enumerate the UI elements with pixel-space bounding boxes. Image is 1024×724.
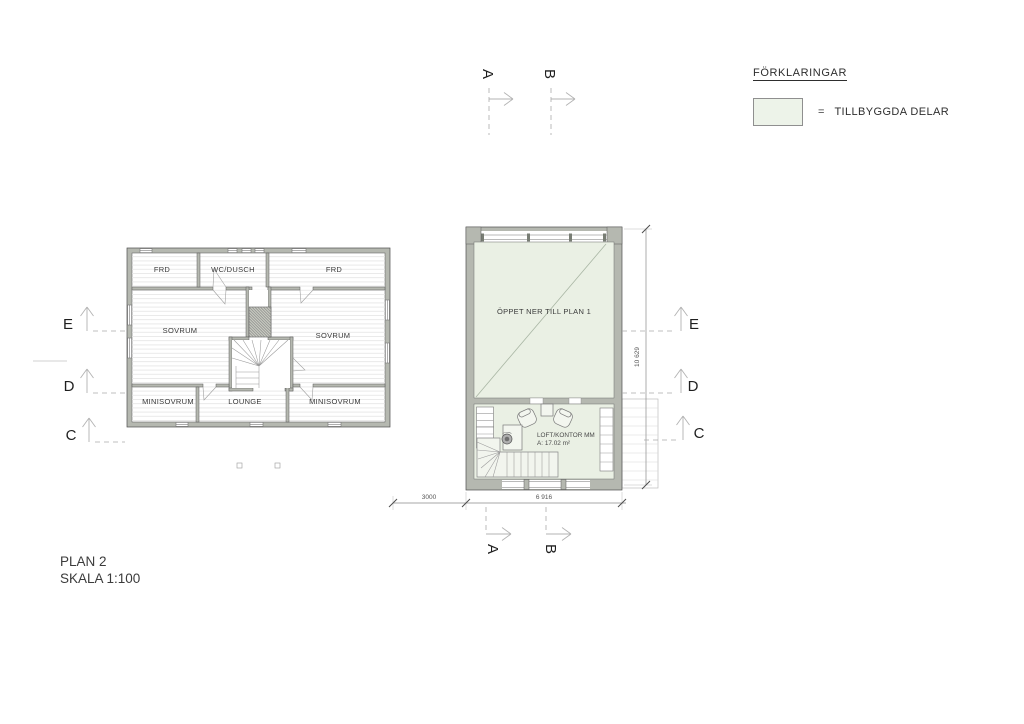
- title-block: PLAN 2 SKALA 1:100: [60, 553, 140, 587]
- room-label-wc-dusch: WC/DUSCH: [211, 265, 255, 274]
- window-post: [561, 480, 566, 490]
- corner-post-ne: [607, 227, 622, 244]
- room-label-frd-left: FRD: [154, 265, 171, 274]
- section-marker-d-right: D: [622, 369, 699, 395]
- section-marker-a-top: A: [479, 69, 513, 135]
- window-post: [524, 480, 529, 490]
- section-marker-b-top: B: [541, 69, 575, 135]
- dim-10629: 10 629: [634, 347, 641, 367]
- svg-text:D: D: [688, 378, 699, 395]
- plan-title: PLAN 2: [60, 553, 140, 570]
- post-marker: [275, 463, 280, 468]
- dimension-bottom: 3000 6 916: [389, 492, 626, 510]
- room-label-minisovrum-left: MINISOVRUM: [142, 397, 194, 406]
- corner-post-nw: [466, 227, 481, 244]
- section-marker-d-left: D: [64, 369, 125, 395]
- divider-opening: [530, 398, 543, 404]
- loft-area-label: A: 17.02 m²: [537, 440, 570, 447]
- section-marker-e-right: E: [622, 307, 699, 333]
- legend-row: = TILLBYGGDA DELAR: [753, 98, 949, 126]
- dim-3000: 3000: [422, 494, 437, 501]
- plan-right: ÖPPET NER TILL PLAN 1: [466, 227, 622, 490]
- svg-text:D: D: [64, 378, 75, 395]
- legend-item-label: TILLBYGGDA DELAR: [834, 106, 949, 118]
- svg-text:C: C: [694, 425, 705, 442]
- legend-equals: =: [818, 106, 824, 118]
- room-label-minisovrum-right: MINISOVRUM: [309, 397, 361, 406]
- legend: FÖRKLARINGAR = TILLBYGGDA DELAR: [753, 63, 949, 126]
- side-table: [541, 404, 553, 416]
- dim-6916: 6 916: [536, 494, 553, 501]
- svg-text:C: C: [66, 427, 77, 444]
- divider-opening: [569, 398, 581, 404]
- room-label-sovrum-right: SOVRUM: [316, 331, 351, 340]
- deck: [622, 399, 658, 488]
- svg-text:B: B: [541, 69, 558, 79]
- section-marker-a-bottom: A: [484, 507, 511, 554]
- section-markers-bottom: A B: [484, 507, 571, 554]
- section-marker-e-left: E: [63, 307, 125, 333]
- drawing-canvas: FRD WC/DUSCH FRD SOVRUM SOVRUM MINISOVRU…: [0, 0, 1024, 724]
- section-markers-left: E D C: [63, 307, 125, 444]
- room-label-frd-right: FRD: [326, 265, 343, 274]
- svg-text:A: A: [479, 69, 496, 79]
- svg-text:A: A: [484, 544, 501, 554]
- post-marker: [237, 463, 242, 468]
- section-marker-b-bottom: B: [542, 507, 571, 554]
- svg-text:E: E: [689, 316, 699, 333]
- shelving-right: [600, 408, 613, 471]
- svg-text:E: E: [63, 316, 73, 333]
- plan-scale: SKALA 1:100: [60, 570, 140, 587]
- svg-text:B: B: [542, 544, 559, 554]
- section-markers-top: A B: [479, 69, 575, 135]
- room-label-lounge: LOUNGE: [228, 397, 261, 406]
- plan-left: FRD WC/DUSCH FRD SOVRUM SOVRUM MINISOVRU…: [127, 248, 390, 468]
- section-marker-c-left: C: [66, 418, 125, 444]
- top-glazing-band: [474, 231, 614, 242]
- legend-title: FÖRKLARINGAR: [753, 67, 847, 81]
- loft-label: LOFT/KONTOR MM: [537, 432, 595, 439]
- room-label-sovrum-left: SOVRUM: [163, 326, 198, 335]
- open-void-label: ÖPPET NER TILL PLAN 1: [497, 307, 591, 316]
- legend-swatch-tillbyggda-delar: [753, 98, 803, 126]
